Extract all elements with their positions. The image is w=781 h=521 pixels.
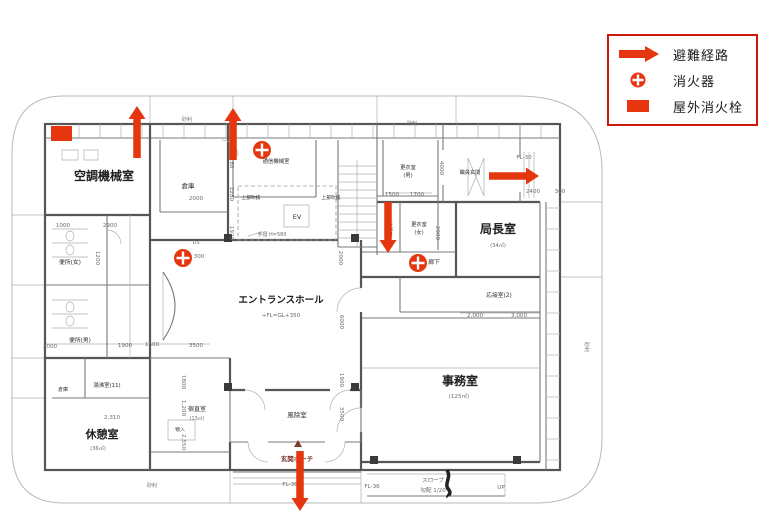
- plan-text: 2280: [228, 187, 234, 202]
- plan-text: FL-36: [364, 484, 380, 490]
- plan-text: 風除室: [287, 410, 307, 419]
- plan-text: 事務室: [442, 373, 478, 388]
- plan-text: 砂利: [147, 482, 157, 489]
- plan-text: (36㎡): [90, 444, 106, 452]
- plan-text: 2,550: [180, 434, 186, 450]
- plan-text: (13㎡): [190, 415, 205, 422]
- plan-text: 1,200: [180, 400, 186, 416]
- plan-text: 1900: [118, 343, 133, 349]
- plan-text: 2.000: [467, 313, 483, 319]
- plan-text: 3.000: [511, 313, 527, 319]
- evacuation-arrow: [380, 202, 397, 253]
- legend-label-fire-extinguisher: 消火器: [673, 71, 715, 90]
- plan-text: UP: [497, 485, 505, 491]
- legend-item-evacuation-route: 避難経路: [617, 45, 748, 64]
- plan-text: 3500: [338, 407, 344, 422]
- plan-text: 応接室(2): [486, 291, 512, 299]
- safety-overlay: [51, 106, 539, 511]
- plan-text: (125㎡): [449, 392, 470, 400]
- plan-text: 通信機械室: [263, 157, 291, 165]
- floor-plan-page: 空調機械室エントランスホール休憩室事務室局長室倉庫通信機械室EV上部吹抜上部吹抜…: [0, 0, 781, 521]
- fire-extinguisher-marker: [253, 141, 271, 159]
- plan-text: FL-30: [516, 155, 532, 161]
- plan-text: 宿直室: [188, 405, 206, 413]
- plan-text: 1900: [338, 373, 344, 388]
- outdoor-hydrant-marker: [51, 126, 72, 141]
- plan-text: 1500: [385, 192, 400, 198]
- plan-text: 1700: [410, 192, 425, 198]
- plan-text: 職員玄関: [460, 168, 481, 176]
- plan-text: 1800: [180, 375, 186, 390]
- porch-mark: [294, 440, 302, 447]
- fire-extinguisher-marker: [174, 249, 192, 267]
- plan-text: 物入: [175, 426, 185, 433]
- plan-text: 休憩室: [85, 427, 119, 441]
- plan-text: スロープ: [422, 477, 444, 484]
- plan-text: 300: [555, 189, 566, 195]
- plan-text: 1920: [228, 226, 234, 241]
- plan-text: 砂利: [182, 116, 192, 123]
- plan-text: DS: [192, 240, 199, 246]
- fire-extinguisher-marker: [409, 254, 427, 272]
- legend: 避難経路 消火器 屋外消火栓: [607, 34, 758, 126]
- plan-text: 砂利: [407, 120, 417, 127]
- plan-text: 勾配 1/20: [420, 486, 446, 494]
- fire-extinguisher-icon: [617, 71, 659, 89]
- plan-text: FL-36: [282, 482, 298, 488]
- plan-text: 1000: [56, 223, 71, 229]
- plan-text: 局長室: [480, 221, 516, 236]
- evacuation-route-arrow-icon: [617, 45, 659, 63]
- plan-text: 2,310: [104, 415, 120, 421]
- plan-text: 3500: [189, 343, 204, 349]
- plan-text: 便所(男): [69, 336, 91, 344]
- legend-item-fire-extinguisher: 消火器: [617, 71, 748, 90]
- plan-text: 1600: [145, 342, 160, 348]
- plan-text: 倉庫: [182, 181, 196, 190]
- plan-text: 1200: [94, 251, 100, 266]
- plan-text: 2000: [434, 226, 440, 241]
- evacuation-arrow: [489, 168, 539, 185]
- outdoor-hydrant-icon: [617, 99, 659, 113]
- plan-text: 3000: [43, 344, 58, 350]
- plan-text: 廊下: [428, 258, 440, 266]
- plan-text: 上部吹抜: [241, 194, 260, 201]
- plan-text: 300: [194, 254, 205, 260]
- plan-text: 更衣室: [400, 163, 416, 171]
- plan-text: (男): [403, 172, 412, 179]
- plan-text: 倉庫: [58, 386, 68, 393]
- plan-text: 空調機械室: [74, 168, 134, 183]
- plan-text: 2900: [103, 223, 118, 229]
- plan-text: EV: [293, 213, 302, 221]
- plan-text: 4000: [438, 161, 444, 176]
- legend-label-outdoor-hydrant: 屋外消火栓: [673, 97, 743, 116]
- plan-text: 上部吹抜: [321, 194, 340, 201]
- plan-text: (女): [414, 228, 423, 236]
- plan-text: 手摺 H=580: [257, 231, 286, 238]
- plan-text: 便所(女): [59, 258, 81, 266]
- plan-text: 2000: [189, 196, 204, 202]
- plan-text: 2400: [526, 189, 541, 195]
- plan-text: +FL=GL+350: [262, 313, 301, 319]
- plan-text: 更衣室: [411, 220, 427, 228]
- legend-label-evacuation-route: 避難経路: [673, 45, 729, 64]
- plan-text: 2000: [337, 251, 343, 266]
- plan-text: 6000: [338, 315, 344, 330]
- plan-text: 湯沸室(11): [93, 381, 120, 389]
- plan-text: 砂利: [583, 342, 590, 352]
- plan-text: エントランスホール: [238, 295, 324, 306]
- plan-text: (34㎡): [490, 241, 506, 249]
- legend-item-outdoor-hydrant: 屋外消火栓: [617, 97, 748, 116]
- evacuation-arrow: [129, 106, 146, 158]
